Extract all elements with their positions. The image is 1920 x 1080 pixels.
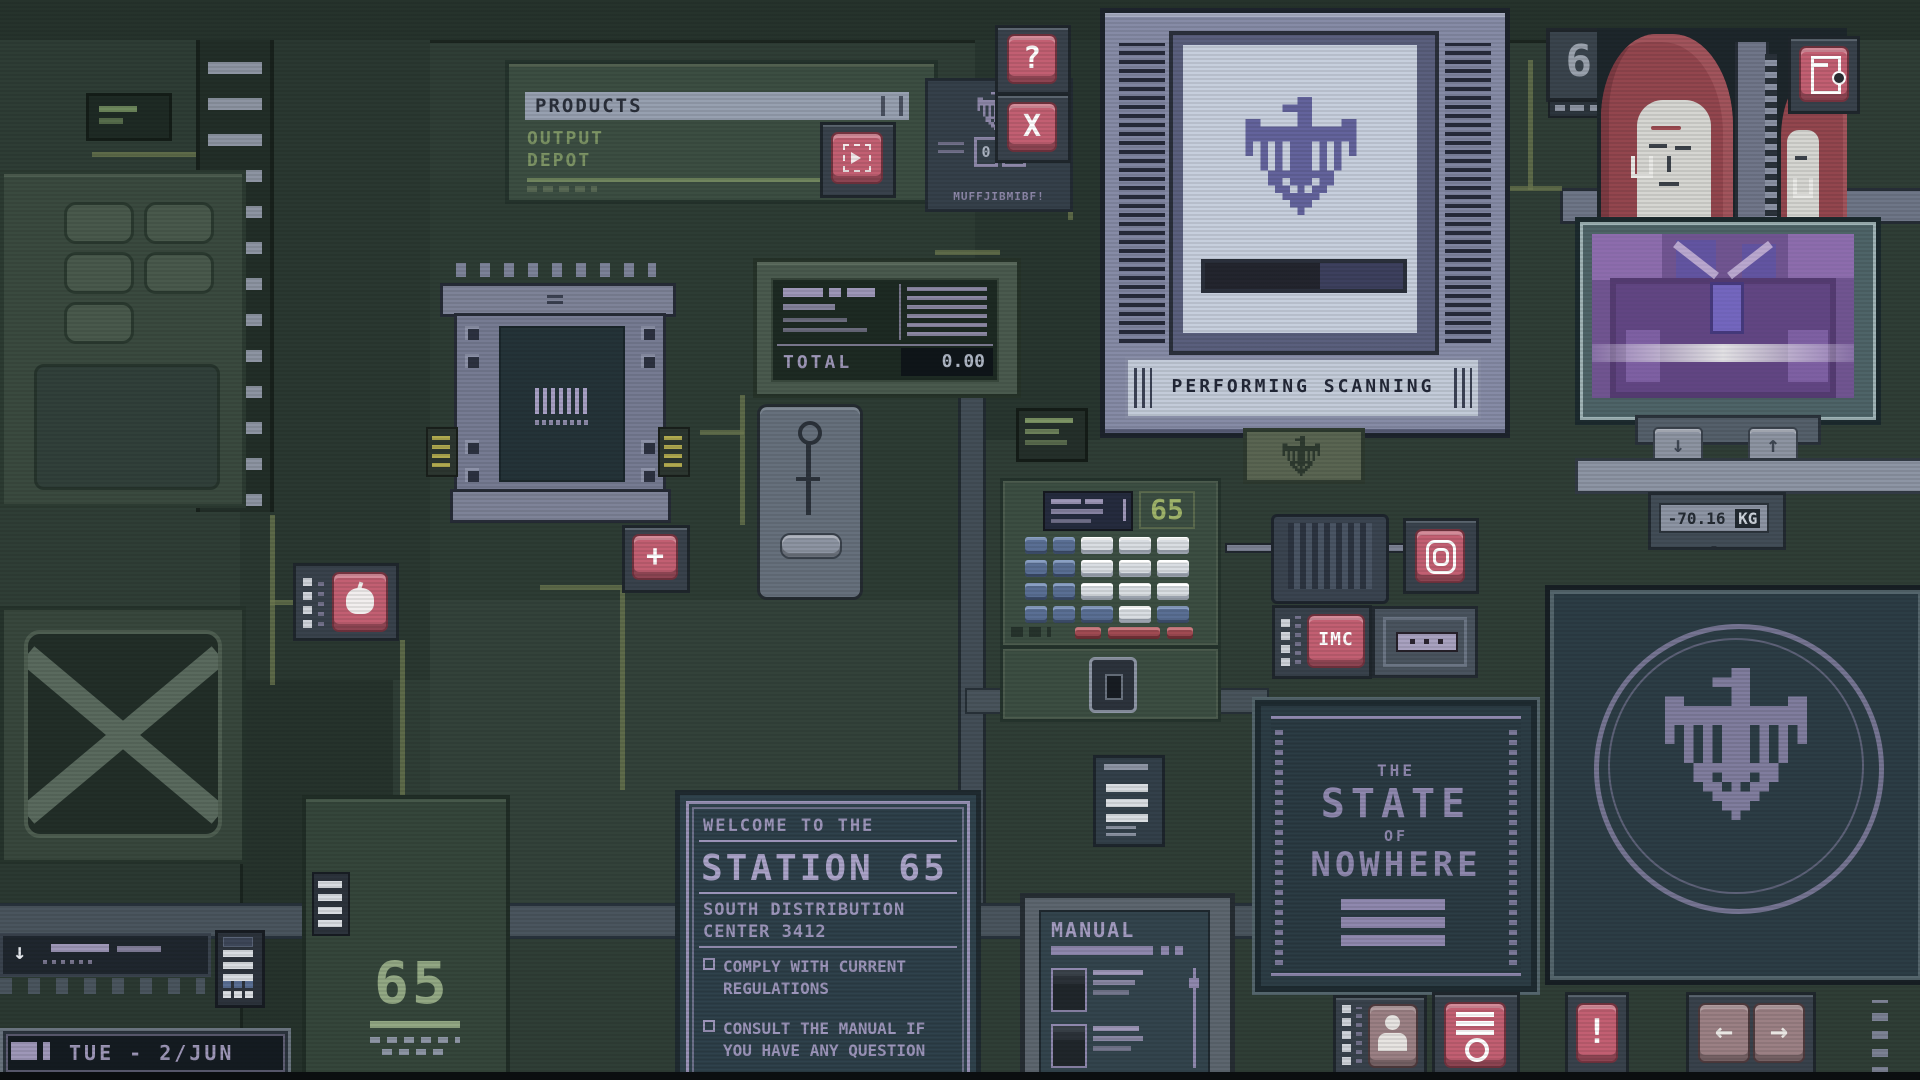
circuit-trace [620,590,625,790]
mock-line [783,328,867,332]
help-button[interactable]: ? [1007,34,1057,84]
chip-readout [99,106,137,112]
plaque-eagle-icon [1275,436,1327,476]
portrait-eye [1675,146,1691,150]
keypad-keys[interactable] [1025,537,1195,625]
medal-button-frame [1432,992,1520,1080]
bolt [641,326,655,340]
bolt [465,326,479,340]
circuit-trace [1502,186,1562,191]
circuit-trace [1528,60,1533,190]
portrait-nose [1667,156,1671,172]
rule-bullet [703,1020,715,1032]
conveyor-dots [43,960,93,964]
earring-icon [1793,178,1813,198]
key[interactable] [1119,606,1151,623]
key[interactable] [1053,606,1075,623]
mock-rows-right [907,286,987,336]
welcome-sub1: SOUTH DISTRIBUTION [703,900,905,920]
x-brace-panel [0,606,246,864]
alert-button-frame: ! [1565,992,1629,1080]
key[interactable] [1081,537,1113,554]
gauge-tick [796,477,820,481]
mock-line [783,318,847,322]
xray-screen [1592,234,1854,398]
target-button[interactable] [831,132,883,184]
date-block [11,1042,37,1060]
display-line [1051,519,1091,523]
keypad-lower-panel [1000,646,1221,722]
key[interactable] [1081,583,1113,600]
apple-panel [293,563,399,641]
phone-lines [1106,826,1136,836]
welcome-divider [699,892,957,894]
cabinet-keypad[interactable] [312,872,350,936]
products-header-bar[interactable]: PRODUCTS [525,92,909,120]
manual-entry-line [1093,980,1135,985]
door-plate-ticks [382,1049,448,1055]
weight-dash: - [1709,537,1719,556]
products-header-label: PRODUCTS [535,95,643,117]
bolt [641,440,655,454]
manual-title: MANUAL [1051,918,1135,942]
key[interactable] [1157,606,1189,623]
circuit-trace [935,250,1000,255]
conveyor-line [51,944,109,952]
machine-vent-mark [547,292,563,304]
barcode-screen[interactable] [499,326,625,482]
keypad-station-id: 65 [1139,491,1195,529]
total-label: TOTAL [783,352,852,373]
display-line [1051,499,1081,504]
keypad-red-row[interactable] [1075,627,1195,639]
poster-bar [1341,935,1445,946]
key[interactable] [1053,537,1075,554]
imc-button[interactable]: IMC [1307,614,1365,668]
medal-button[interactable] [1444,1002,1506,1068]
xray-scanlines [1592,234,1854,398]
scanner-status-bar: PERFORMING SCANNING [1125,357,1481,419]
motor-cylinder [1271,514,1389,604]
bolt [465,468,479,482]
door-plate-ticks [370,1037,460,1043]
toggle-switch[interactable] [1089,657,1137,713]
welcome-rule-1: COMPLY WITH CURRENT REGULATIONS [723,956,953,1000]
person-icon-body [1378,1033,1407,1051]
glyph-column [1356,1007,1362,1063]
medal-icon-ring [1465,1038,1489,1062]
scanner-bezel [1169,31,1439,355]
welcome-divider [699,946,957,948]
mini-eq-panel [1016,408,1088,462]
portrait-face-right [1787,130,1819,222]
capsule-slot [64,252,134,294]
display-line [1051,509,1103,514]
manual-entry-line [1093,1036,1143,1041]
toggle-knob [1105,674,1123,700]
state-poster: THE STATE OF NOWHERE [1255,700,1537,992]
add-button[interactable]: + [632,534,678,580]
manual-screen: MANUAL [1039,910,1210,1080]
xray-monitor [1575,217,1881,425]
circuit-trace [400,640,405,800]
glyph-column [1295,616,1301,664]
connector-pins [432,435,450,467]
manual-thumb [1051,1024,1087,1068]
conveyor-display: ↓ [0,933,211,977]
medal-icon-bar [1456,1030,1494,1035]
exit-door-button[interactable] [1799,46,1849,102]
food-ration-button[interactable] [332,572,388,632]
manual-entry-line [1093,1026,1139,1031]
scanner-status-text: PERFORMING SCANNING [1128,376,1478,397]
manual-title-dot [1161,946,1169,955]
slot-bezel [1383,617,1467,667]
gauge-slider[interactable] [780,533,842,559]
portrait-eye [1795,156,1807,160]
info-lines [938,137,964,153]
portrait-pillar [1735,42,1769,222]
poster-state: STATE [1271,781,1521,827]
portrait-eye [1649,144,1667,148]
person-icon-head [1385,1015,1400,1030]
mock-line [847,288,875,297]
rule-bullet [703,958,715,970]
scrollbar-grip-icon [881,96,903,116]
key[interactable] [1053,583,1075,600]
key-red[interactable] [1075,627,1101,639]
card-slot[interactable] [1396,632,1458,652]
manual-entry[interactable] [1051,1024,1181,1068]
key[interactable] [1025,606,1047,623]
fingerprint-button[interactable] [1415,529,1465,583]
weight-dash: - [1668,509,1678,528]
close-button-frame: X [995,93,1071,163]
indicator-column [1342,1005,1351,1065]
register-panel: TOTAL 0.00 [753,258,1021,398]
machine-bottom-bar [450,489,671,523]
phone-keys [1106,778,1148,822]
target-arrow-icon [851,152,861,164]
machine-connector-left [426,427,458,477]
poster-bar [1341,917,1445,928]
station65-screen: PRODUCTS OUTPUT DEPOT 0 0 MUFFJIBMIBF! ?… [0,0,1920,1080]
plus-button-frame: + [622,525,690,593]
info-code-text: MUFFJIBMIBF! [928,190,1070,203]
manual-entry[interactable] [1051,968,1181,1012]
key-red[interactable] [1108,627,1160,639]
date-text: TUE - 2/JUN [69,1041,234,1065]
weight-display: -70.16 KG - [1659,503,1769,533]
key[interactable] [1119,560,1151,577]
key[interactable] [1157,537,1189,554]
barcode [535,388,589,414]
next-button[interactable]: → [1753,1003,1805,1063]
date-block [43,1042,50,1060]
poster-inner: THE STATE OF NOWHERE [1271,716,1521,976]
scan-progress-track [1201,259,1407,293]
manual-title-bar [1051,946,1153,955]
scanner-screen [1183,45,1417,333]
scanner-vent-left [1119,43,1165,343]
earring-icon [1631,156,1653,178]
key[interactable] [1119,537,1151,554]
slot-dot [1410,639,1415,644]
stud-column [1872,1000,1888,1075]
bolt [465,440,479,454]
welcome-inner: WELCOME TO THE STATION 65 SOUTH DISTRIBU… [686,801,970,1080]
indicator-column [303,574,312,628]
stud-row [0,978,205,994]
hatch-plate [34,364,220,490]
slot-dot [1438,639,1443,644]
circuit-pipe [1225,543,1275,553]
emblem-eagle-icon [1646,668,1826,820]
medal-icon-bar [1456,1021,1494,1026]
register-hline [777,344,993,346]
phone-screen-line [1104,764,1148,770]
light [1555,105,1565,111]
circuit-trace [92,152,212,157]
manual-entry-line [1093,1046,1131,1051]
fingerprint-inner [1433,548,1449,566]
machine-frame [454,313,666,495]
keypad-marks [1011,627,1051,637]
welcome-title: STATION 65 [701,848,948,889]
chip-display [86,93,172,141]
id-card-panel [1333,995,1427,1079]
central-machine [424,245,704,520]
portrait-mouth [1659,182,1679,186]
poster-bar [1341,899,1445,910]
green-door: 65 [302,795,510,1080]
machine-studs [456,263,656,277]
door-plate-underline [370,1021,460,1028]
weight-unit-badge: KG [1735,509,1760,528]
target-icon [843,144,871,172]
manual-panel: MANUAL [1020,893,1235,1080]
mock-line [829,288,841,297]
mock-line [783,304,835,310]
capsule-panel [0,170,246,508]
door-icon [1811,56,1841,94]
chip-readout [99,118,123,124]
manual-scroll-handle[interactable] [1189,978,1199,988]
barcode-digits [535,420,589,425]
weight-value: 70.16 [1677,509,1725,528]
products-ticks [527,186,597,192]
manual-entry-line [1093,990,1129,995]
capsule-slot [144,202,214,244]
apple-icon [346,588,374,614]
total-value-box: 0.00 [901,348,993,376]
key[interactable] [1053,560,1075,577]
eq-row [1025,418,1073,423]
bolt [641,354,655,368]
down-arrow-icon: ↓ [13,940,26,965]
capsule-slot [64,202,134,244]
scanner-monitor: PERFORMING SCANNING [1100,8,1510,438]
key-red[interactable] [1167,627,1193,639]
manual-thumb [1051,968,1087,1012]
scanner-plaque [1243,428,1365,484]
manual-title-dot [1175,946,1183,955]
manual-entry-line [1093,970,1143,975]
register-divider [899,284,901,340]
side-keys [223,949,253,981]
poster-the: THE [1271,761,1521,780]
eq-row [1025,440,1067,445]
key[interactable] [1081,560,1113,577]
nav-panel: ← → [1686,992,1816,1076]
card-slot-panel [1372,606,1478,678]
key[interactable] [1081,606,1113,623]
phone-keypad[interactable] [1093,755,1165,847]
welcome-divider [699,840,957,842]
close-button[interactable]: X [1007,102,1057,152]
welcome-rule-2: CONSULT THE MANUAL IF YOU HAVE ANY QUEST… [723,1018,953,1062]
key[interactable] [1025,583,1047,600]
motor-ribs [1288,523,1372,589]
key[interactable] [1157,583,1189,600]
circuit-trace [740,395,745,525]
circuit-trace [700,430,744,435]
bolt [641,468,655,482]
poster-nowhere: NOWHERE [1271,845,1521,885]
key[interactable] [1119,583,1151,600]
portrait-zipper [1765,54,1777,222]
side-keys-blue [223,981,253,988]
screen-edge [0,1072,1920,1080]
key[interactable] [1025,560,1047,577]
fingerprint-icon [1426,540,1456,574]
keypad-top-panel: 65 [1000,478,1221,648]
scan-progress-fill [1205,263,1320,289]
machine-connector-right [658,427,690,477]
key[interactable] [1157,560,1189,577]
alert-button[interactable]: ! [1576,1003,1618,1063]
indicator-column [1281,614,1290,666]
products-divider [527,178,827,182]
state-eagle-icon [1231,97,1371,215]
scale-platform [1575,458,1920,494]
seal-button-frame [1403,518,1479,594]
portrait-brow [1651,126,1681,130]
prev-button[interactable]: ← [1698,1003,1750,1063]
date-display: TUE - 2/JUN [0,1028,291,1078]
bolt [465,354,479,368]
products-line1: OUTPUT [527,128,604,149]
medal-icon-bar [1456,1012,1494,1017]
welcome-sub2: CENTER 3412 [703,922,827,942]
display-line [1085,499,1103,504]
welcome-sign: WELCOME TO THE STATION 65 SOUTH DISTRIBU… [675,790,981,1080]
glyph-column [318,576,324,626]
welcome-intro: WELCOME TO THE [703,816,874,836]
keypad-display [1043,491,1133,531]
keypad-unit: 65 [1000,478,1215,718]
slot-dot [1424,639,1429,644]
eq-row [1025,429,1059,434]
door-top-bar [1814,63,1828,67]
machine-top-bar [440,283,676,317]
circuit-trace [540,585,624,590]
exit-button-frame [1788,36,1860,114]
side-keypad[interactable] [215,930,265,1008]
help-button-frame: ? [995,25,1071,95]
mock-line [783,288,823,297]
capsule-slot [64,302,134,344]
conveyor-line [117,946,161,952]
register-screen: TOTAL 0.00 [771,278,999,382]
connector-pins [664,435,682,467]
display-cursor [1123,499,1126,521]
poster-of: OF [1271,827,1521,845]
imc-panel: IMC [1272,605,1372,679]
side-keys [223,991,253,998]
weight-display-frame: -70.16 KG - [1648,492,1786,550]
emblem-panel [1545,585,1920,985]
capsule-slot [144,252,214,294]
side-keypad-display [223,937,253,947]
gauge-device [757,404,863,600]
scanner-vent-right [1445,43,1491,343]
key[interactable] [1025,537,1047,554]
products-line2: DEPOT [527,150,591,171]
target-button-frame [820,122,896,198]
door-plate-id: 65 [374,949,450,1017]
profile-button[interactable] [1368,1004,1418,1068]
light [1570,105,1584,111]
cabinet-keys [318,879,342,927]
door-knob [1832,71,1846,85]
x-brace-door [24,630,222,838]
